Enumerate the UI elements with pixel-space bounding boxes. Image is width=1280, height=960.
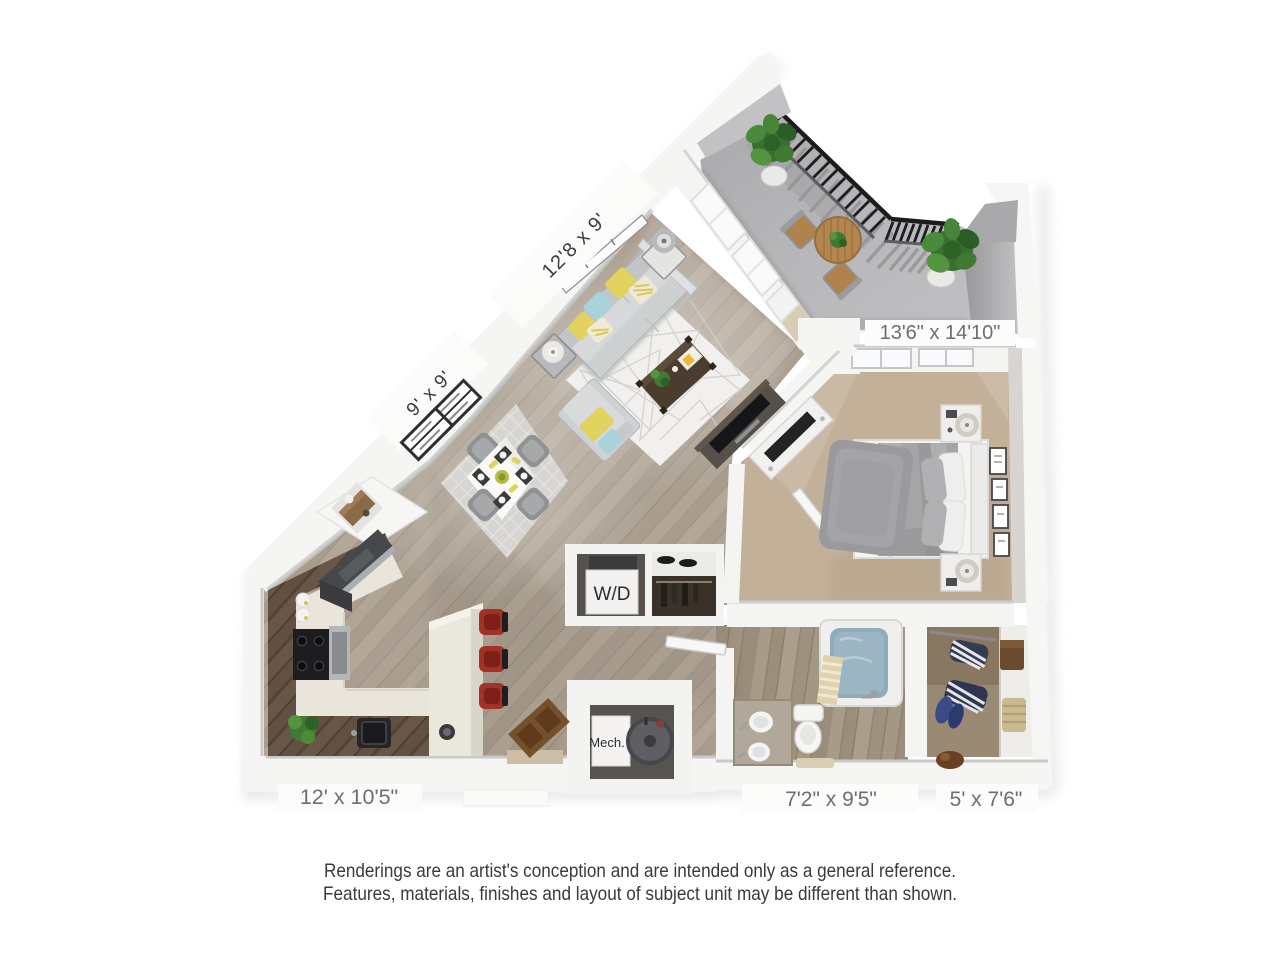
svg-text:13'6" x 14'10": 13'6" x 14'10"	[880, 322, 1001, 344]
svg-text:12' x 10'5": 12' x 10'5"	[300, 785, 398, 809]
svg-text:Features, materials, finishes: Features, materials, finishes and layout…	[323, 883, 957, 905]
svg-text:Renderings are an artist's con: Renderings are an artist's conception an…	[324, 860, 956, 882]
svg-text:7'2" x 9'5": 7'2" x 9'5"	[785, 788, 877, 811]
svg-text:W/D: W/D	[594, 584, 631, 605]
svg-text:5' x 7'6": 5' x 7'6"	[950, 788, 1023, 811]
svg-text:Mech.: Mech.	[589, 735, 624, 750]
